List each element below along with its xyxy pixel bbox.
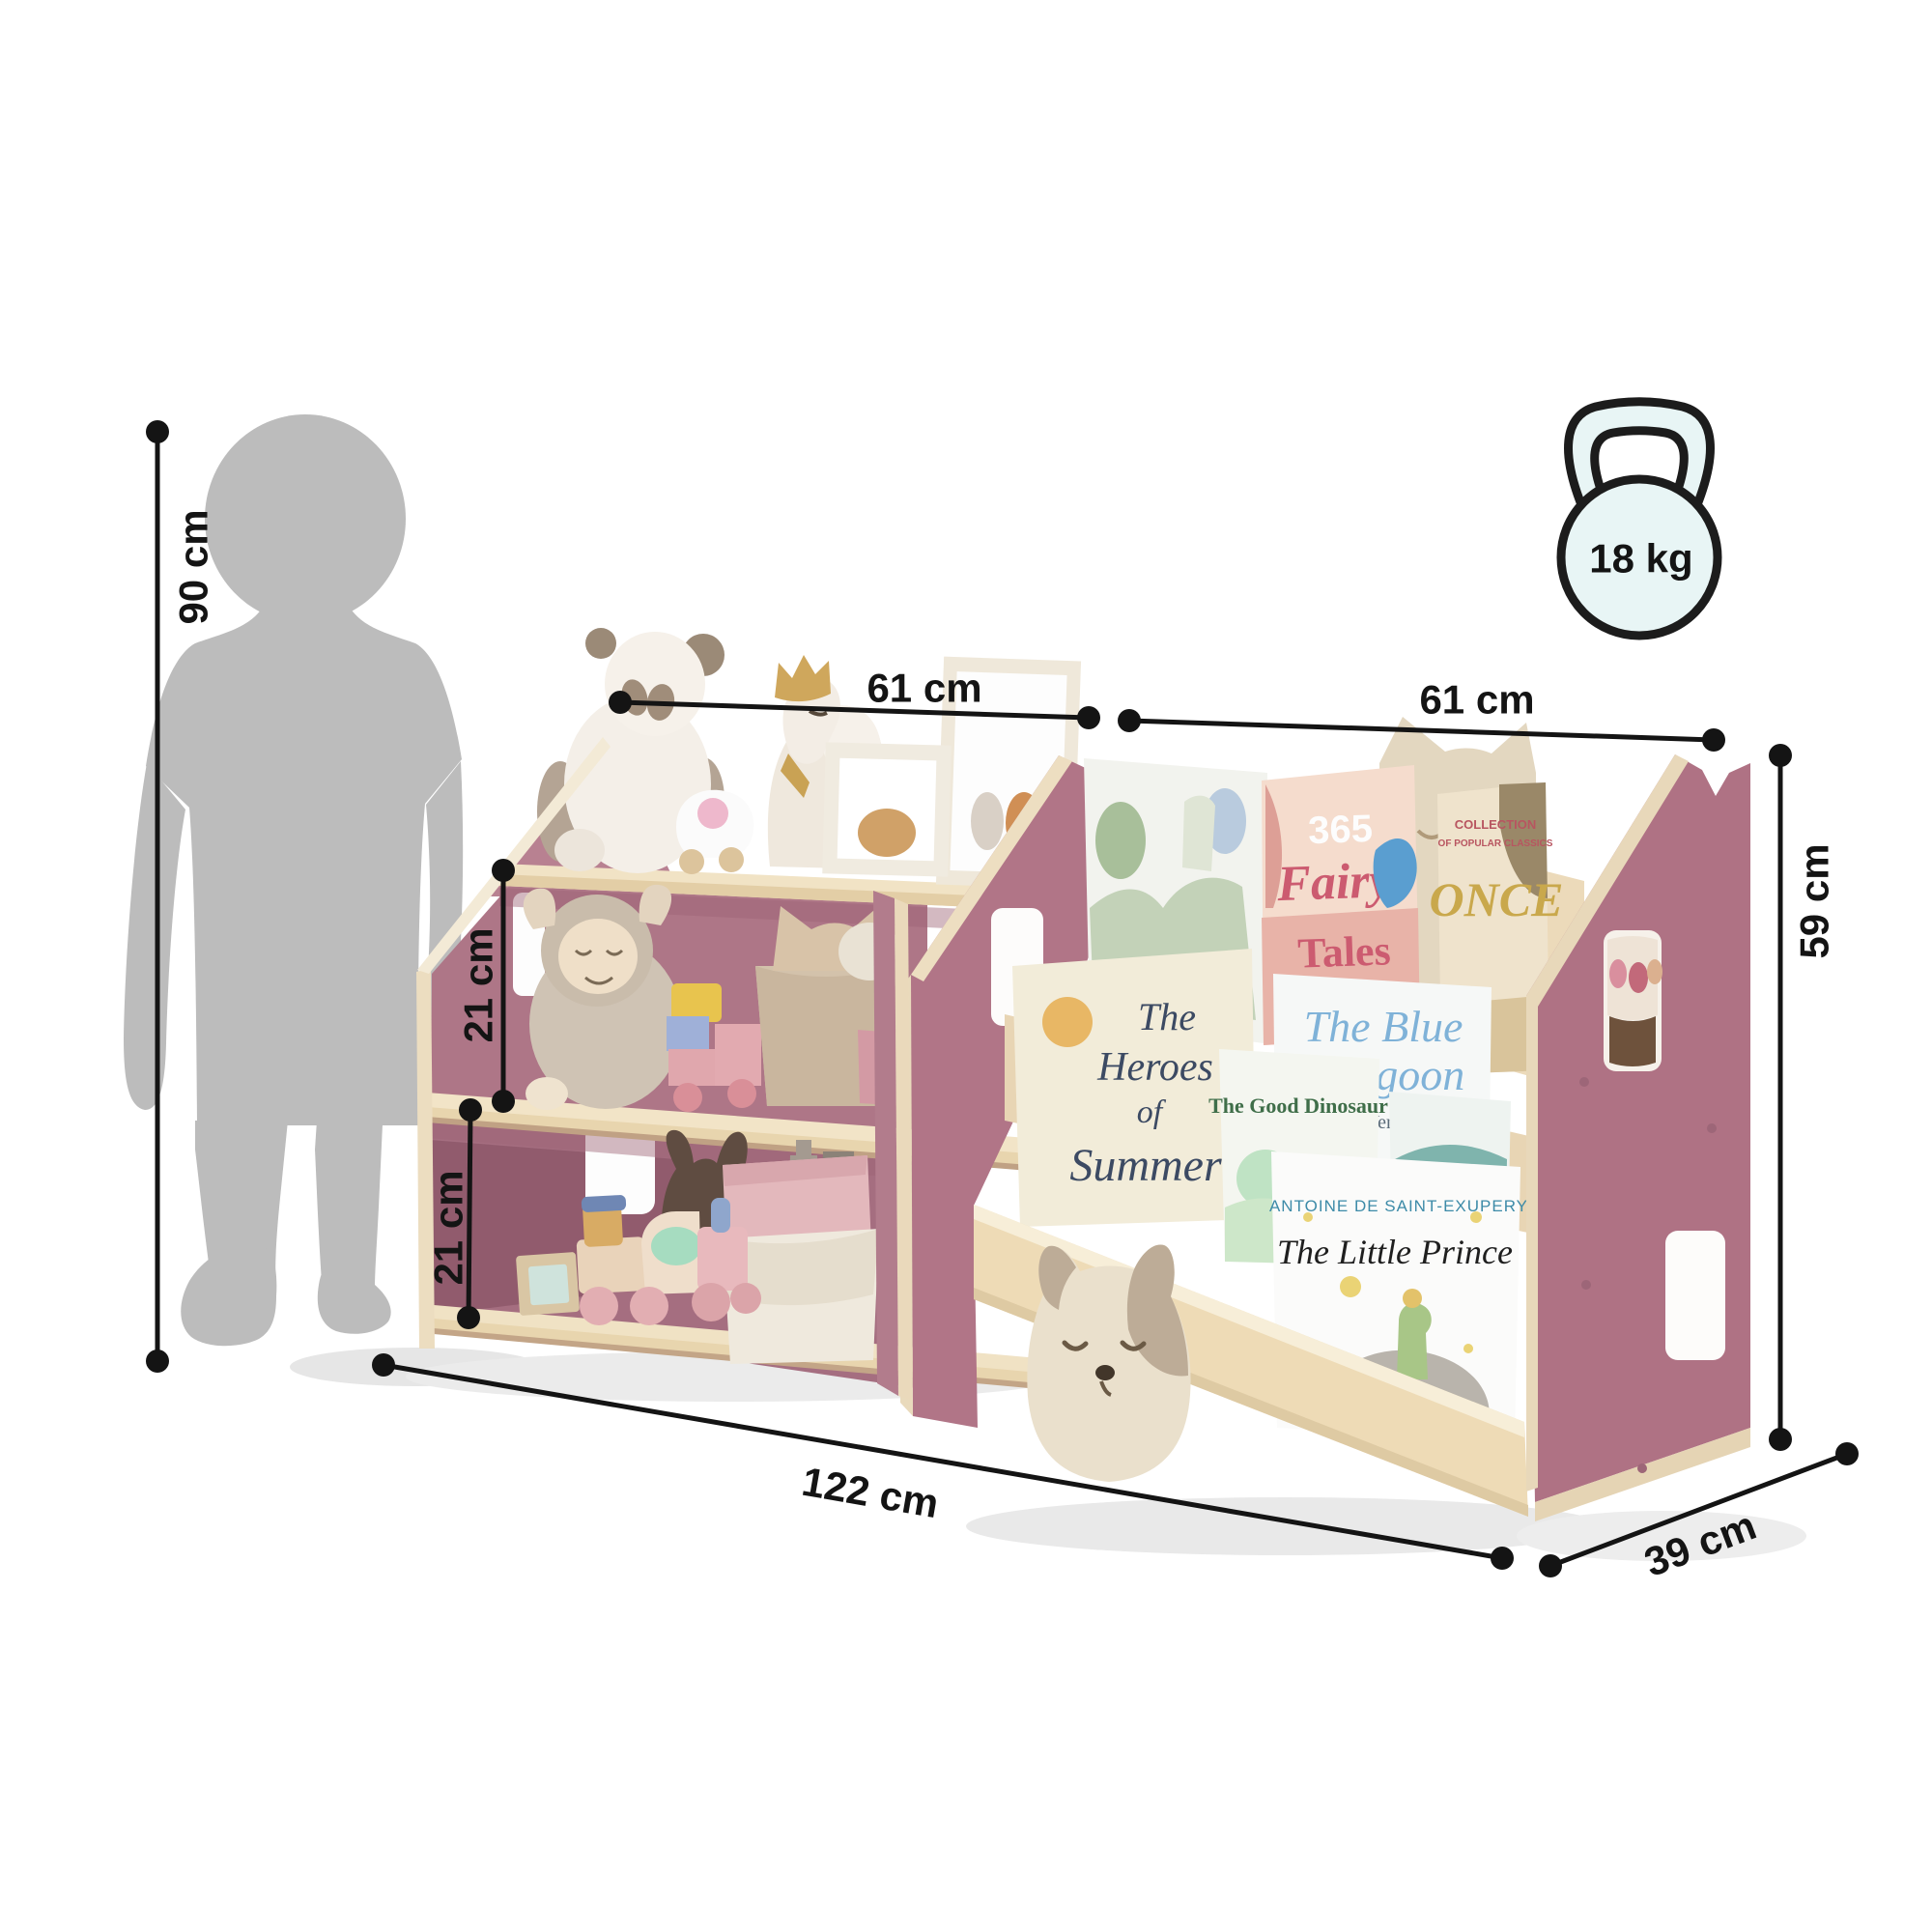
svg-text:The: The <box>1138 995 1196 1038</box>
svg-text:The Blue: The Blue <box>1304 1002 1463 1051</box>
svg-text:Summer: Summer <box>1069 1140 1222 1191</box>
svg-text:The Good Dinosaur: The Good Dinosaur <box>1208 1094 1388 1118</box>
svg-text:90 cm: 90 cm <box>171 509 216 624</box>
svg-text:COLLECTION: COLLECTION <box>1455 817 1537 832</box>
svg-text:61 cm: 61 cm <box>867 666 981 711</box>
svg-text:18 kg: 18 kg <box>1589 536 1692 582</box>
svg-text:21 cm: 21 cm <box>426 1170 471 1285</box>
svg-text:61 cm: 61 cm <box>1419 677 1534 723</box>
svg-text:ONCE: ONCE <box>1430 872 1564 926</box>
svg-text:59 cm: 59 cm <box>1792 843 1837 958</box>
svg-text:Heroes: Heroes <box>1096 1045 1213 1090</box>
svg-text:21 cm: 21 cm <box>456 927 501 1042</box>
svg-text:365: 365 <box>1307 808 1373 852</box>
svg-text:Tales: Tales <box>1297 926 1392 977</box>
svg-text:of: of <box>1137 1094 1167 1130</box>
svg-text:The Little Prince: The Little Prince <box>1277 1233 1513 1271</box>
svg-text:OF POPULAR CLASSICS: OF POPULAR CLASSICS <box>1438 838 1553 849</box>
